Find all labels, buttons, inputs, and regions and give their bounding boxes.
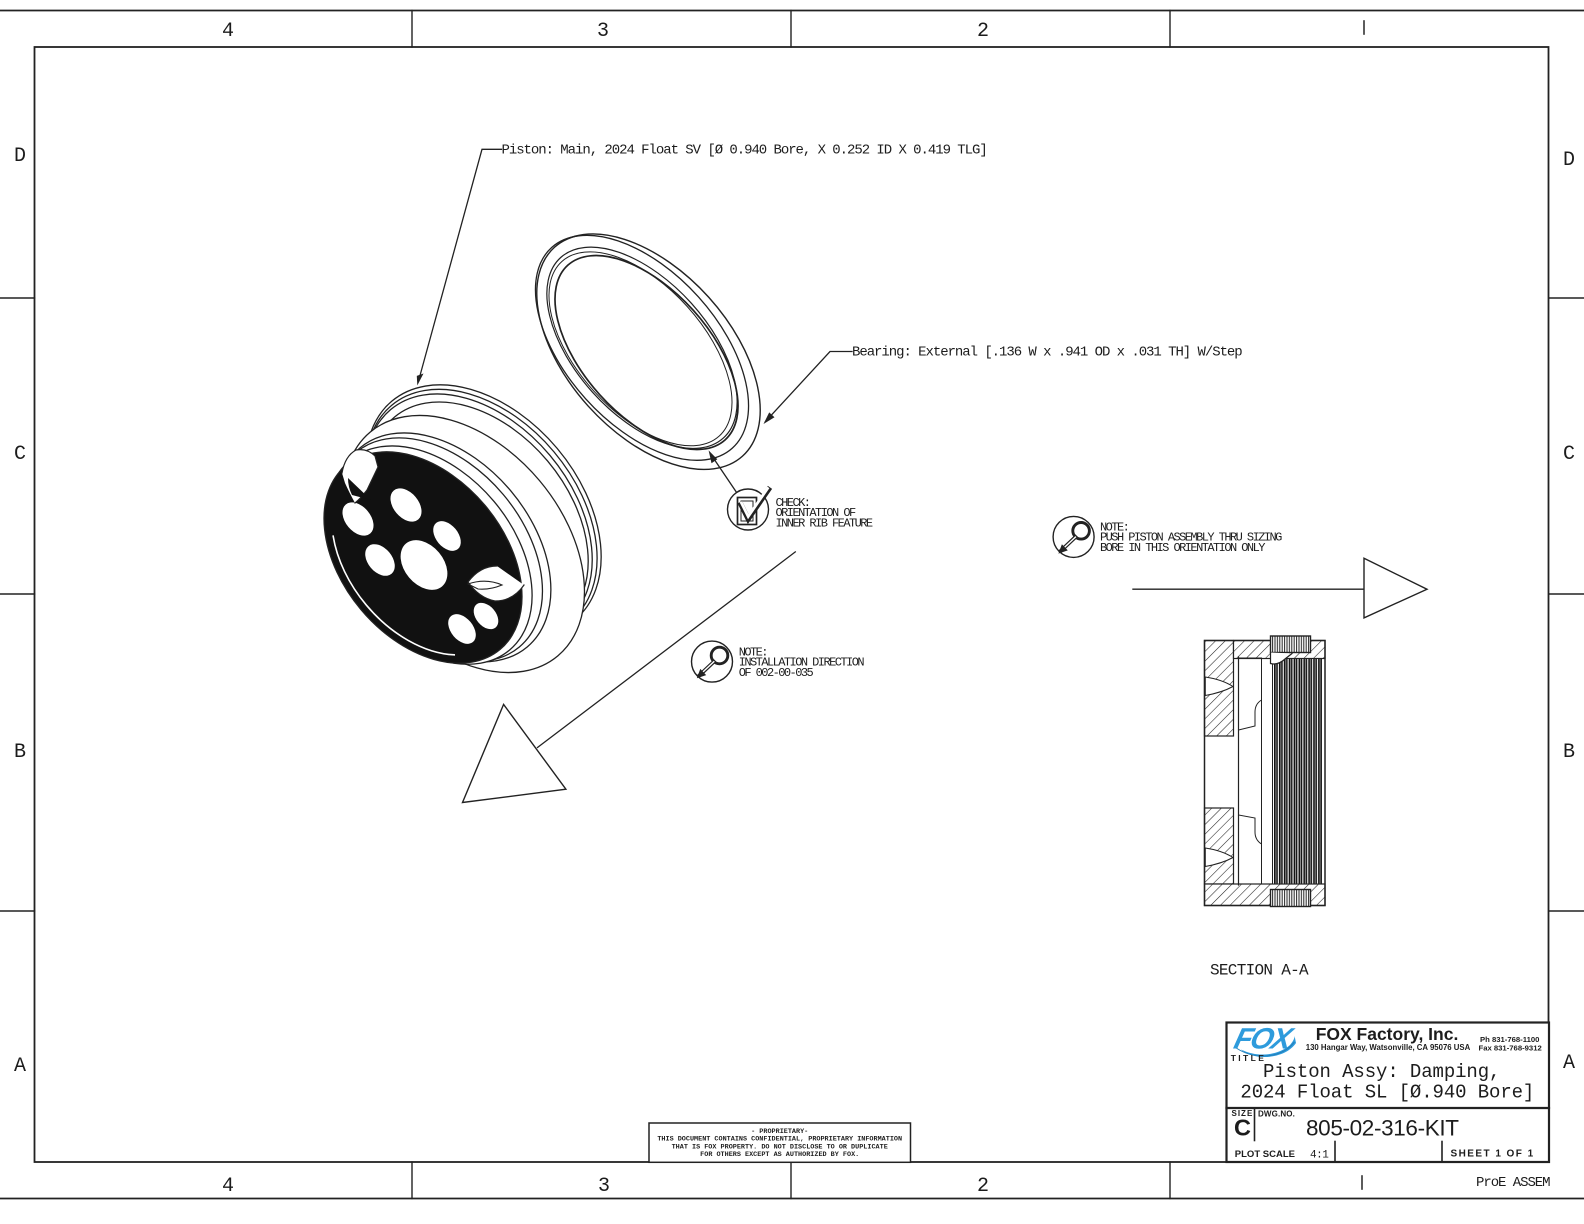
svg-text:Piston: Main, 2024 Float SV [Ø: Piston: Main, 2024 Float SV [Ø 0.940 Bor… bbox=[502, 143, 987, 159]
svg-text:2024 Float SL [Ø.940 Bore]: 2024 Float SL [Ø.940 Bore] bbox=[1240, 1082, 1534, 1104]
svg-text:A: A bbox=[1563, 1052, 1575, 1075]
svg-text:SHEET 1 OF 1: SHEET 1 OF 1 bbox=[1451, 1149, 1535, 1160]
svg-text:2: 2 bbox=[977, 1175, 989, 1198]
svg-text:D: D bbox=[1563, 149, 1575, 172]
svg-text:ProE ASSEM: ProE ASSEM bbox=[1476, 1175, 1550, 1191]
svg-text:OF 002-00-035: OF 002-00-035 bbox=[739, 666, 814, 680]
svg-text:C: C bbox=[1234, 1115, 1251, 1141]
svg-text:4:1: 4:1 bbox=[1310, 1150, 1329, 1162]
svg-text:C: C bbox=[1563, 443, 1575, 466]
svg-text:4: 4 bbox=[222, 1175, 234, 1198]
svg-text:2: 2 bbox=[977, 20, 989, 43]
svg-text:3: 3 bbox=[597, 20, 609, 43]
svg-text:FOX Factory, Inc.: FOX Factory, Inc. bbox=[1316, 1024, 1459, 1044]
svg-text:PLOT SCALE: PLOT SCALE bbox=[1235, 1149, 1295, 1160]
svg-text:DWG.NO.: DWG.NO. bbox=[1258, 1110, 1295, 1119]
svg-text:THIS DOCUMENT CONTAINS CONFIDE: THIS DOCUMENT CONTAINS CONFIDENTIAL, PRO… bbox=[657, 1135, 902, 1143]
svg-text:C: C bbox=[14, 443, 26, 466]
svg-text:SECTION A-A: SECTION A-A bbox=[1210, 962, 1309, 980]
svg-text:D: D bbox=[14, 145, 26, 168]
svg-text:B: B bbox=[1563, 741, 1575, 764]
svg-text:INNER RIB FEATURE: INNER RIB FEATURE bbox=[776, 516, 873, 530]
svg-text:A: A bbox=[14, 1055, 26, 1078]
svg-text:805-02-316-KIT: 805-02-316-KIT bbox=[1306, 1116, 1459, 1141]
svg-text:3: 3 bbox=[598, 1175, 610, 1198]
svg-text:FOR OTHERS EXCEPT AS AUTHORIZE: FOR OTHERS EXCEPT AS AUTHORIZED BY FOX. bbox=[700, 1151, 859, 1159]
svg-text:B: B bbox=[14, 741, 26, 764]
svg-text:130 Hangar Way, Watsonville, C: 130 Hangar Way, Watsonville, CA 95076 US… bbox=[1306, 1043, 1471, 1052]
svg-text:4: 4 bbox=[222, 20, 234, 43]
svg-text:TITLE: TITLE bbox=[1231, 1053, 1267, 1063]
svg-text:Bearing: External [.136 W x .9: Bearing: External [.136 W x .941 OD x .0… bbox=[852, 345, 1242, 361]
svg-text:BORE IN THIS ORIENTATION ONLY: BORE IN THIS ORIENTATION ONLY bbox=[1100, 541, 1265, 555]
svg-text:Piston Assy: Damping,: Piston Assy: Damping, bbox=[1263, 1061, 1500, 1083]
svg-text:Fax 831-768-9312: Fax 831-768-9312 bbox=[1479, 1044, 1542, 1053]
